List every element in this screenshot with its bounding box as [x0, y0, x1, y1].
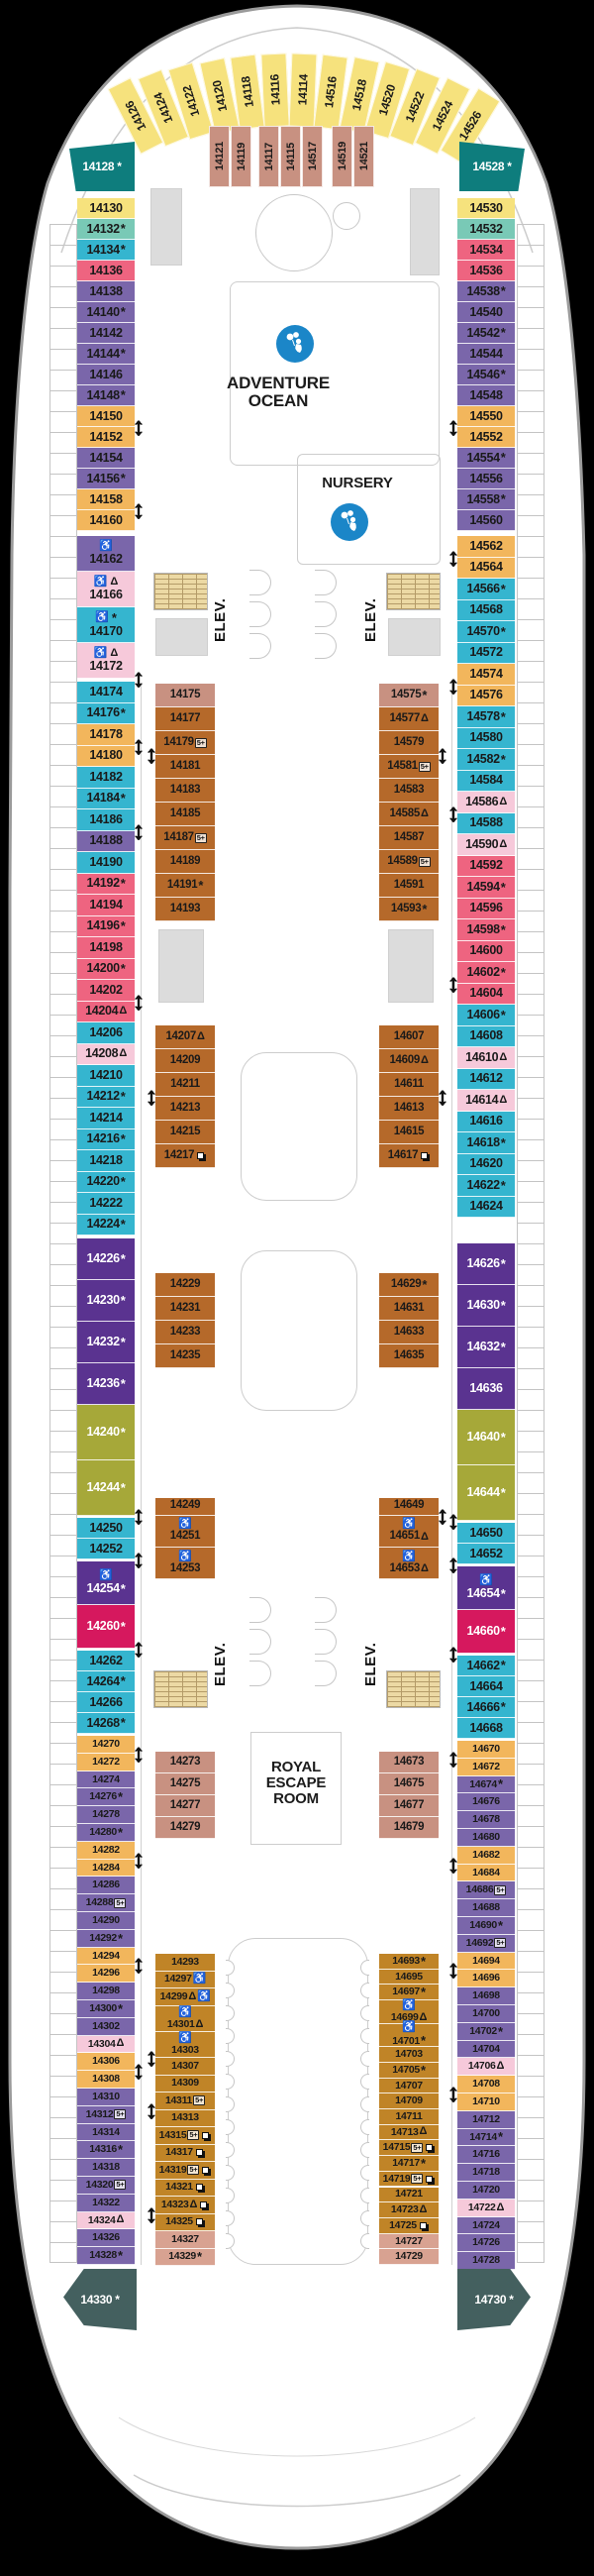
- connecting-cabins-arrow: ↕: [434, 1500, 451, 1530]
- cabin-14600: 14600: [457, 941, 515, 963]
- kids-club-icon: [276, 325, 314, 363]
- cabin-14185: 14185: [155, 803, 215, 826]
- connecting-cabins-arrow: ↕: [130, 1633, 148, 1663]
- cabin-14530: 14530: [457, 198, 515, 219]
- cabin-14678: 14678: [457, 1811, 515, 1829]
- cabin-14584: 14584: [457, 771, 515, 793]
- cabin-14636: 14636: [457, 1368, 515, 1410]
- triangle-symbol: Δ: [499, 1052, 507, 1063]
- triangle-symbol: Δ: [499, 797, 507, 807]
- cabin-14616: 14616: [457, 1112, 515, 1133]
- cabin-14705: 14705*: [379, 2063, 439, 2079]
- deck-plan: ADVENTURE OCEAN NURSERY ELEV. ELEV. ELEV…: [0, 0, 594, 2576]
- cabin-14204: 14204Δ: [77, 1002, 135, 1023]
- cabin-14318: 14318: [77, 2159, 135, 2177]
- connecting-cabins-arrow: ↕: [143, 2042, 160, 2072]
- cabin-14709: 14709: [379, 2093, 439, 2109]
- cabin-14532: 14532: [457, 219, 515, 240]
- cabin-14612: 14612: [457, 1069, 515, 1091]
- cabin-14156: 14156*: [77, 469, 135, 489]
- cabin-14276: 14276*: [77, 1788, 135, 1806]
- triangle-symbol: Δ: [421, 808, 429, 819]
- royal-escape-room-label: ROYAL ESCAPE ROOM: [256, 1760, 336, 1808]
- cabin-14633: 14633: [379, 1321, 439, 1344]
- accessible-icon: ♿: [94, 648, 108, 659]
- cabin-14542: 14542*: [457, 323, 515, 344]
- connecting-cabins-arrow: ↕: [130, 494, 148, 524]
- cabin-14226: 14226*: [77, 1238, 135, 1280]
- cabin-14593: 14593*: [379, 898, 439, 921]
- cabin-14252: 14252: [77, 1539, 135, 1559]
- cabin-14177: 14177: [155, 707, 215, 731]
- cabin-14235: 14235: [155, 1344, 215, 1368]
- cabin-14664: 14664: [457, 1676, 515, 1697]
- cabin-14206: 14206: [77, 1022, 135, 1044]
- connecting-rooms-icon: [202, 2167, 209, 2174]
- asterisk-symbol: *: [118, 2249, 123, 2262]
- cabin-14292: 14292*: [77, 1930, 135, 1948]
- cabin-14574: 14574: [457, 664, 515, 686]
- triangle-symbol: Δ: [117, 2038, 125, 2049]
- asterisk-symbol: *: [121, 1481, 126, 1494]
- cabin-14212: 14212*: [77, 1087, 135, 1109]
- cabin-14296: 14296: [77, 1965, 135, 1983]
- asterisk-symbol: *: [121, 1090, 126, 1103]
- balcony-strip-right: [517, 224, 544, 2263]
- cabin-14311: 143115+: [155, 2093, 215, 2110]
- splash-pool-knob: [333, 202, 360, 230]
- cabin-14299: 14299Δ♿: [155, 1988, 215, 2006]
- triangle-symbol: Δ: [420, 2012, 428, 2023]
- cabin-14262: 14262: [77, 1651, 135, 1671]
- cabin-14719: 147195+: [379, 2172, 439, 2188]
- cabin-14710: 14710: [457, 2093, 515, 2111]
- cabin-14717: 14717*: [379, 2156, 439, 2172]
- cabin-14546: 14546*: [457, 365, 515, 385]
- asterisk-symbol: *: [501, 753, 506, 766]
- cabin-14132: 14132*: [77, 219, 135, 240]
- asterisk-symbol: *: [118, 2002, 123, 2015]
- connecting-cabins-arrow: ↕: [445, 1954, 462, 1984]
- asterisk-symbol: *: [501, 368, 506, 380]
- five-plus-badge: 5+: [114, 2109, 126, 2119]
- cabin-14566: 14566*: [457, 579, 515, 600]
- cabin-14220: 14220*: [77, 1172, 135, 1194]
- cabin-14585: 14585Δ: [379, 803, 439, 826]
- cabin-14662: 14662*: [457, 1656, 515, 1676]
- cabin-14275: 14275: [155, 1773, 215, 1795]
- scalloped-venue: [228, 1938, 368, 2265]
- cabin-14172: ♿Δ14172: [77, 643, 135, 679]
- cabin-14178: 14178: [77, 724, 135, 746]
- cabin-14297: 14297♿: [155, 1972, 215, 1989]
- cabin-14640: 14640*: [457, 1410, 515, 1465]
- asterisk-symbol: *: [121, 1175, 126, 1188]
- connecting-cabins-arrow: ↕: [434, 739, 451, 769]
- splash-pool-outline: [255, 194, 333, 271]
- cabin-14313: 14313: [155, 2110, 215, 2128]
- cabin-14196: 14196*: [77, 916, 135, 938]
- cabin-14229: 14229: [155, 1273, 215, 1297]
- cabin-14316: 14316*: [77, 2141, 135, 2159]
- cabin-14724: 14724: [457, 2217, 515, 2235]
- accessible-icon: ♿: [193, 1974, 206, 1985]
- asterisk-symbol: *: [121, 1582, 126, 1595]
- asterisk-symbol: *: [121, 1218, 126, 1231]
- cabin-14232: 14232*: [77, 1322, 135, 1363]
- cabin-14712: 14712: [457, 2111, 515, 2129]
- cabin-14562: 14562: [457, 536, 515, 558]
- cabin-14216: 14216*: [77, 1129, 135, 1151]
- connecting-cabins-arrow: ↕: [143, 739, 160, 769]
- five-plus-badge: 5+: [195, 833, 207, 843]
- triangle-symbol: Δ: [420, 2204, 428, 2215]
- asterisk-symbol: *: [501, 1659, 506, 1671]
- central-venue: [241, 1052, 357, 1201]
- cabin-14604: 14604: [457, 984, 515, 1006]
- connecting-cabins-arrow: ↕: [143, 1081, 160, 1111]
- cabin-14300: 14300*: [77, 2000, 135, 2018]
- cabin-14306: 14306: [77, 2053, 135, 2071]
- central-venue: [241, 1250, 357, 1411]
- cabin-14210: 14210: [77, 1065, 135, 1087]
- asterisk-symbol: *: [121, 1132, 126, 1145]
- cabin-14117: 14117: [258, 126, 279, 187]
- cabin-14325: 14325: [155, 2214, 215, 2232]
- triangle-symbol: Δ: [197, 1031, 205, 1042]
- connecting-rooms-icon: [197, 1152, 204, 1159]
- cabin-14128: 14128 *: [69, 142, 135, 191]
- accessible-icon: ♿: [95, 612, 109, 623]
- cabin-14288: 142885+: [77, 1894, 135, 1912]
- cabin-14200: 14200*: [77, 959, 135, 981]
- connecting-cabins-arrow: ↕: [445, 1743, 462, 1772]
- cabin-14192: 14192*: [77, 874, 135, 896]
- cabin-14211: 14211: [155, 1073, 215, 1097]
- utility-block: [410, 188, 440, 275]
- cabin-14711: 14711: [379, 2109, 439, 2125]
- asterisk-symbol: *: [121, 243, 126, 256]
- cabin-14327: 14327: [155, 2231, 215, 2249]
- connecting-rooms-icon: [202, 2132, 209, 2139]
- elevator-label: ELEV.: [212, 573, 229, 642]
- cabin-14213: 14213: [155, 1097, 215, 1121]
- cabin-14142: 14142: [77, 323, 135, 344]
- cabin-14183: 14183: [155, 779, 215, 803]
- corridor-wall: [141, 684, 142, 2265]
- asterisk-symbol: *: [501, 284, 506, 297]
- asterisk-symbol: *: [121, 472, 126, 484]
- cabin-14166: ♿Δ14166: [77, 572, 135, 607]
- asterisk-symbol: *: [498, 1919, 503, 1932]
- cabin-14298: 14298: [77, 1983, 135, 2000]
- cabin-14590: 14590Δ: [457, 834, 515, 856]
- asterisk-symbol: *: [121, 305, 126, 318]
- cabin-14302: 14302: [77, 2018, 135, 2036]
- cabin-14722: 14722Δ: [457, 2200, 515, 2217]
- stairs: [153, 1670, 208, 1708]
- cabin-14119: 14119: [231, 126, 251, 187]
- asterisk-symbol: *: [498, 1777, 503, 1790]
- cabin-14326: 14326: [77, 2229, 135, 2247]
- cabin-14626: 14626*: [457, 1243, 515, 1285]
- scallop-seat: [360, 2096, 369, 2112]
- asterisk-symbol: *: [501, 1431, 506, 1444]
- cabin-14309: 14309: [155, 2076, 215, 2093]
- cabin-14544: 14544: [457, 344, 515, 365]
- cabin-14144: 14144*: [77, 344, 135, 365]
- cabin-14181: 14181: [155, 755, 215, 779]
- asterisk-symbol: *: [421, 2157, 426, 2170]
- cabin-14274: 14274: [77, 1771, 135, 1789]
- cabin-14606: 14606*: [457, 1005, 515, 1026]
- connecting-rooms-icon: [420, 2222, 427, 2229]
- cabin-14698: 14698: [457, 1987, 515, 2005]
- cabin-14540: 14540: [457, 302, 515, 323]
- asterisk-symbol: *: [121, 877, 126, 890]
- five-plus-badge: 5+: [193, 2095, 205, 2105]
- asterisk-symbol: *: [498, 2130, 503, 2143]
- asterisk-symbol: *: [421, 1955, 426, 1968]
- asterisk-symbol: *: [501, 1136, 506, 1149]
- cabin-14231: 14231: [155, 1297, 215, 1321]
- cabin-14624: 14624: [457, 1197, 515, 1219]
- cabin-14653: ♿14653Δ: [379, 1548, 439, 1579]
- asterisk-symbol: *: [421, 1986, 426, 1998]
- cabin-14538: 14538*: [457, 281, 515, 302]
- cabin-14322: 14322: [77, 2195, 135, 2212]
- connecting-cabins-arrow: ↕: [445, 1549, 462, 1578]
- asterisk-symbol: *: [121, 1294, 126, 1307]
- cabin-14264: 14264*: [77, 1671, 135, 1692]
- cabin-14723: 14723Δ: [379, 2202, 439, 2218]
- connecting-cabins-arrow: ↕: [130, 411, 148, 441]
- cabin-14293: 14293: [155, 1954, 215, 1972]
- cabin-14209: 14209: [155, 1049, 215, 1073]
- cabin-14620: 14620: [457, 1154, 515, 1176]
- cabin-14588: 14588: [457, 813, 515, 835]
- cabin-14684: 14684: [457, 1865, 515, 1882]
- cabin-14152: 14152: [77, 427, 135, 448]
- triangle-symbol: Δ: [499, 1095, 507, 1106]
- cabin-14650: 14650: [457, 1523, 515, 1544]
- nursery-icon: [331, 503, 368, 541]
- corridor-wall: [451, 684, 452, 2265]
- cabin-14519: 14519: [332, 126, 352, 187]
- cabin-14191: 14191*: [155, 874, 215, 898]
- asterisk-symbol: *: [501, 1341, 506, 1353]
- cabin-14115: 14115: [280, 126, 301, 187]
- cabin-14582: 14582*: [457, 749, 515, 771]
- asterisk-symbol: *: [121, 1377, 126, 1390]
- cabin-14577: 14577Δ: [379, 707, 439, 731]
- asterisk-symbol: *: [118, 2143, 123, 2156]
- cabin-14592: 14592: [457, 856, 515, 878]
- cabin-14686: 146865+: [457, 1881, 515, 1899]
- cabin-14189: 14189: [155, 850, 215, 874]
- cabin-14317: 14317: [155, 2145, 215, 2163]
- cabin-14695: 14695: [379, 1970, 439, 1986]
- triangle-symbol: Δ: [421, 1563, 429, 1574]
- asterisk-symbol: *: [121, 1620, 126, 1633]
- cabin-14674: 14674*: [457, 1776, 515, 1794]
- cabin-14162: ♿14162: [77, 536, 135, 572]
- stairs: [386, 1670, 441, 1708]
- asterisk-symbol: *: [421, 2034, 426, 2047]
- cabin-14649: 14649: [379, 1498, 439, 1516]
- asterisk-symbol: *: [501, 966, 506, 979]
- utility-block: [150, 188, 182, 266]
- cabin-14160: 14160: [77, 510, 135, 531]
- connecting-cabins-arrow: ↕: [445, 542, 462, 572]
- cabin-14673: 14673: [379, 1752, 439, 1773]
- cabin-14725: 14725: [379, 2218, 439, 2234]
- scallop-seat: [360, 2028, 369, 2044]
- cabin-14583: 14583: [379, 779, 439, 803]
- asterisk-symbol: *: [501, 1625, 506, 1638]
- cabin-14576: 14576: [457, 686, 515, 707]
- asterisk-symbol: *: [121, 1336, 126, 1348]
- accessible-icon: ♿: [178, 1519, 192, 1530]
- triangle-symbol: Δ: [497, 2202, 505, 2213]
- cabin-14714: 14714*: [457, 2129, 515, 2147]
- five-plus-badge: 5+: [494, 1885, 506, 1895]
- cabin-14611: 14611: [379, 1073, 439, 1097]
- cabin-14677: 14677: [379, 1795, 439, 1817]
- scallop-seat: [360, 2074, 369, 2090]
- cabin-14270: 14270: [77, 1736, 135, 1754]
- asterisk-symbol: *: [121, 222, 126, 235]
- cabin-14312: 143125+: [77, 2106, 135, 2124]
- cabin-14138: 14138: [77, 281, 135, 302]
- asterisk-symbol: *: [501, 881, 506, 894]
- cabin-14575: 14575*: [379, 684, 439, 707]
- connecting-rooms-icon: [421, 1152, 428, 1159]
- cabin-14622: 14622*: [457, 1175, 515, 1197]
- cabin-14140: 14140*: [77, 302, 135, 323]
- connecting-cabins-arrow: ↕: [434, 1081, 451, 1111]
- asterisk-symbol: *: [501, 1257, 506, 1270]
- cabin-14716: 14716: [457, 2146, 515, 2164]
- scallop-seat: [360, 2142, 369, 2158]
- cabin-14253: ♿14253: [155, 1548, 215, 1579]
- accessible-icon: ♿: [479, 1575, 493, 1586]
- cabin-14693: 14693*: [379, 1954, 439, 1970]
- triangle-symbol: Δ: [497, 2061, 505, 2072]
- connecting-cabins-arrow: ↕: [143, 2094, 160, 2124]
- connecting-cabins-arrow: ↕: [130, 1738, 148, 1768]
- stairs: [386, 573, 441, 610]
- connecting-cabins-arrow: ↕: [445, 670, 462, 699]
- cabin-14560: 14560: [457, 510, 515, 531]
- cabin-14558: 14558*: [457, 489, 515, 510]
- cabin-14260: 14260*: [77, 1605, 135, 1649]
- connecting-rooms-icon: [426, 2176, 433, 2183]
- cabin-14116: 14116: [260, 54, 289, 128]
- cabin-14186: 14186: [77, 809, 135, 831]
- triangle-symbol: Δ: [117, 2214, 125, 2225]
- cabin-14613: 14613: [379, 1097, 439, 1121]
- cabin-14591: 14591: [379, 874, 439, 898]
- triangle-symbol: Δ: [188, 1991, 196, 2002]
- asterisk-symbol: *: [121, 1252, 126, 1265]
- connecting-rooms-icon: [196, 2184, 203, 2191]
- cabin-14323: 14323Δ: [155, 2197, 215, 2214]
- accessible-icon: ♿: [99, 541, 113, 552]
- asterisk-symbol: *: [501, 1179, 506, 1192]
- asterisk-symbol: *: [118, 1826, 123, 1839]
- five-plus-badge: 5+: [187, 2130, 199, 2140]
- cabin-14202: 14202: [77, 980, 135, 1002]
- connecting-cabins-arrow: ↕: [130, 815, 148, 845]
- cabin-14184: 14184*: [77, 789, 135, 810]
- connecting-rooms-icon: [200, 2201, 207, 2208]
- cabin-14136: 14136: [77, 261, 135, 281]
- cabin-14702: 14702*: [457, 2023, 515, 2041]
- cabin-14208: 14208Δ: [77, 1044, 135, 1066]
- scallop-seat: [360, 1983, 369, 1998]
- cabin-14720: 14720: [457, 2182, 515, 2200]
- asterisk-symbol: *: [421, 2064, 426, 2077]
- asterisk-symbol: *: [197, 2250, 202, 2263]
- asterisk-symbol: *: [501, 1486, 506, 1499]
- five-plus-badge: 5+: [411, 2143, 423, 2153]
- connecting-cabins-arrow: ↕: [130, 1544, 148, 1573]
- scallop-seat: [360, 1960, 369, 1976]
- cabin-14608: 14608: [457, 1026, 515, 1048]
- cabin-14279: 14279: [155, 1817, 215, 1839]
- cabin-14218: 14218: [77, 1150, 135, 1172]
- scallop-seat: [360, 2119, 369, 2135]
- cabin-14713: 14713Δ: [379, 2125, 439, 2141]
- stairs: [153, 573, 208, 610]
- connecting-cabins-arrow: ↕: [445, 968, 462, 998]
- utility-block: [388, 618, 441, 656]
- asterisk-symbol: *: [501, 451, 506, 464]
- cabin-14676: 14676: [457, 1793, 515, 1811]
- accessible-icon: ♿: [178, 1552, 192, 1562]
- cabin-14193: 14193: [155, 898, 215, 921]
- cabin-14277: 14277: [155, 1795, 215, 1817]
- asterisk-symbol: *: [112, 611, 117, 624]
- cabin-14251: ♿14251: [155, 1516, 215, 1548]
- cabin-14321: 14321: [155, 2180, 215, 2198]
- five-plus-badge: 5+: [419, 762, 431, 772]
- cabin-14308: 14308: [77, 2071, 135, 2089]
- cabin-14534: 14534: [457, 240, 515, 261]
- cabin-14552: 14552: [457, 427, 515, 448]
- cabin-14556: 14556: [457, 469, 515, 489]
- scallop-seat: [360, 2233, 369, 2249]
- cabin-14328: 14328*: [77, 2247, 135, 2265]
- cabin-14579: 14579: [379, 731, 439, 755]
- cabin-14114: 14114: [289, 54, 318, 128]
- cabin-14631: 14631: [379, 1297, 439, 1321]
- cabin-14198: 14198: [77, 937, 135, 959]
- asterisk-symbol: *: [121, 347, 126, 360]
- asterisk-symbol: *: [498, 2025, 503, 2038]
- cabin-14307: 14307: [155, 2058, 215, 2076]
- triangle-symbol: Δ: [196, 2019, 204, 2030]
- cabin-14654: ♿14654*: [457, 1566, 515, 1610]
- accessible-icon: ♿: [402, 1552, 416, 1562]
- scallop-seat: [360, 2188, 369, 2203]
- cabin-14303: ♿14303: [155, 2032, 215, 2058]
- cabin-14632: 14632*: [457, 1327, 515, 1368]
- cabin-14278: 14278: [77, 1806, 135, 1824]
- connecting-cabins-arrow: ↕: [445, 1638, 462, 1667]
- cabin-14692: 146925+: [457, 1935, 515, 1953]
